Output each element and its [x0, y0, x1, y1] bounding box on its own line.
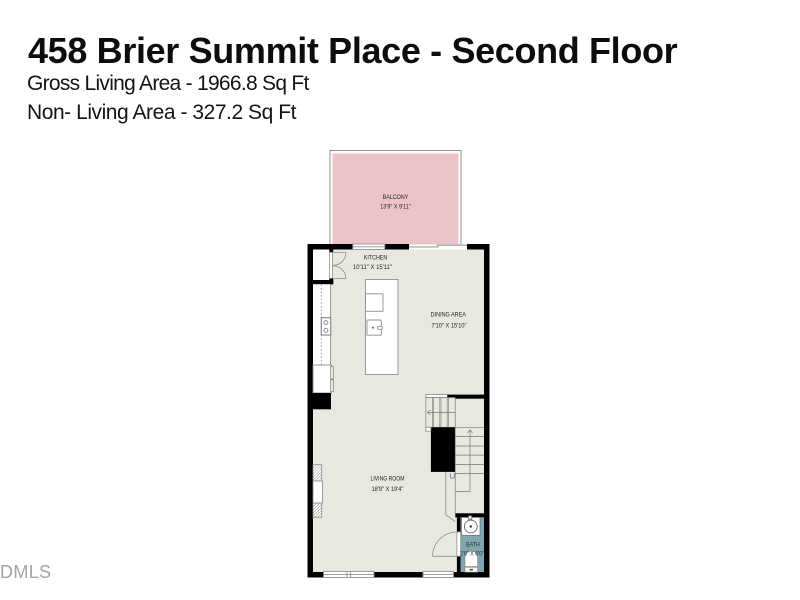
svg-text:LIVING ROOM: LIVING ROOM [371, 476, 405, 483]
svg-text:13'9" X 9'11": 13'9" X 9'11" [380, 203, 411, 210]
svg-text:7'10" X 15'10": 7'10" X 15'10" [432, 323, 467, 330]
svg-text:DINING AREA: DINING AREA [431, 312, 467, 319]
svg-text:BALCONY: BALCONY [383, 194, 409, 201]
svg-text:BATH: BATH [466, 542, 480, 549]
svg-text:10'11" X 15'11": 10'11" X 15'11" [353, 264, 392, 271]
svg-text:KITCHEN: KITCHEN [364, 255, 388, 262]
svg-text:18'9" X 19'4": 18'9" X 19'4" [372, 486, 404, 493]
svg-text:2'8" X 6'0": 2'8" X 6'0" [460, 551, 484, 558]
